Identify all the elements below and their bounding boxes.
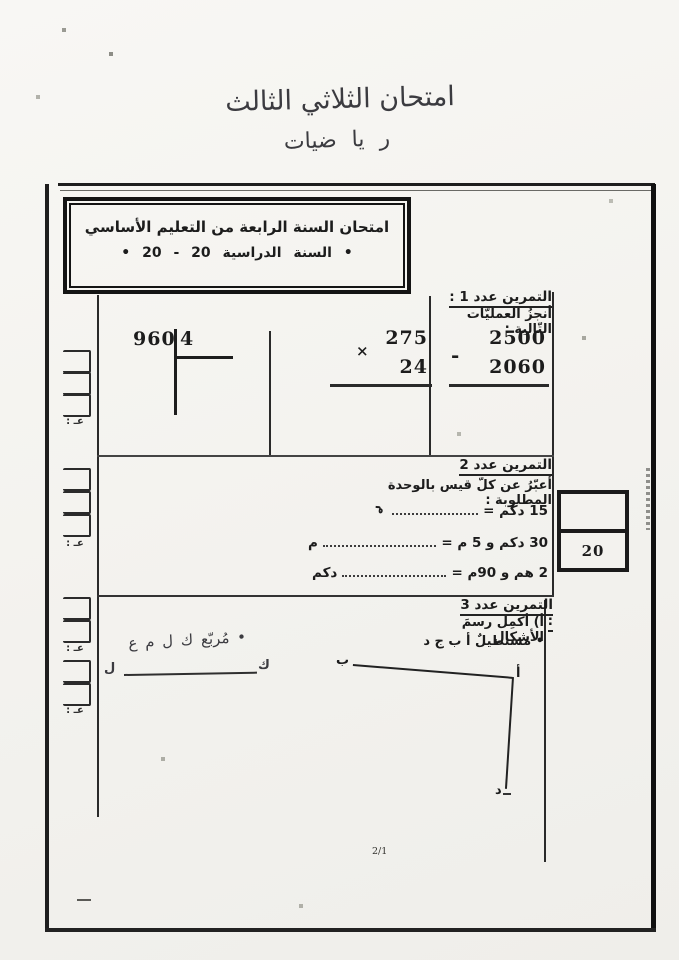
exercise1-title: التمرين عدد 1 : xyxy=(430,289,552,305)
subtraction-subtrahend: 2060 xyxy=(445,356,550,378)
conversion-label: 30 دكم و 5 م = xyxy=(441,535,548,551)
conversion-unit: م xyxy=(375,505,390,515)
dotted-answer-line xyxy=(323,544,436,547)
margin-score-label: عـ : xyxy=(58,416,92,427)
scanned-exam-page: امتحان الثلاثي الثالث ر يا ضيات امتحان ا… xyxy=(0,0,679,960)
point-d-tick xyxy=(503,793,511,795)
margin-score-box xyxy=(63,350,91,373)
margin-score-label: عـ : xyxy=(58,643,92,654)
minus-operator: - xyxy=(451,343,460,367)
conversion-item-1: 15 دكم = م xyxy=(378,503,548,519)
ex1-left-divider-line xyxy=(269,331,271,456)
header-box: امتحان السنة الرابعة من التعليم الأساسي … xyxy=(63,197,411,294)
margin-score-box xyxy=(63,660,91,683)
rectangle-top-side xyxy=(353,664,513,679)
rectangle-right-side xyxy=(505,677,514,789)
margin-smudge xyxy=(646,468,650,530)
division-bar-vertical xyxy=(174,329,177,415)
frame-line-top-inner xyxy=(60,190,655,191)
margin-score-box xyxy=(63,514,91,537)
handwritten-subject: ر يا ضيات xyxy=(262,125,413,155)
score-box-empty xyxy=(557,490,629,533)
dotted-answer-line xyxy=(392,512,478,515)
point-label-b: ب xyxy=(336,653,349,668)
conversion-item-2: 30 دكم و 5 م = م xyxy=(308,535,548,551)
multiplication-multiplier: 24 xyxy=(328,356,432,378)
margin-score-label: عـ : xyxy=(58,538,92,549)
square-shape-label: • مُربّع ك ل م ع xyxy=(128,628,247,652)
exercise2-title: التمرين عدد 2 xyxy=(452,457,552,473)
division-dividend: 960 xyxy=(133,328,176,350)
margin-score-box xyxy=(63,620,91,643)
rectangle-shape-label: • مستطيلٌ أ ب ج د xyxy=(386,634,544,649)
point-label-a: أ xyxy=(516,666,520,681)
margin-score-box xyxy=(63,597,91,620)
division-bar-horizontal xyxy=(176,356,233,359)
segment-kl-line xyxy=(124,672,257,676)
margin-score-box xyxy=(63,394,91,417)
subtraction-operation: 2500 - 2060 xyxy=(445,327,550,378)
ex3-right-column-line xyxy=(544,600,546,862)
scan-speckles xyxy=(0,0,2,2)
frame-line-right xyxy=(651,184,656,932)
margin-score-box xyxy=(63,683,91,706)
division-divisor: 4 xyxy=(180,328,194,350)
score-box-total: 20 xyxy=(557,529,629,572)
multiplication-operation: 275 × 24 xyxy=(328,327,432,378)
point-label-k: ك xyxy=(258,658,270,673)
margin-score-label: عـ : xyxy=(58,705,92,716)
handwritten-exam-title: امتحان الثلاثي الثالث xyxy=(190,80,491,119)
stray-dash-mark xyxy=(77,899,91,901)
score-value: 20 xyxy=(582,542,605,560)
subtraction-result-line xyxy=(449,384,549,387)
margin-score-box xyxy=(63,468,91,491)
header-school-year: • السنة الدراسية 20 - 20 • xyxy=(71,245,403,261)
margin-divider-line xyxy=(97,295,99,817)
subtraction-minuend: 2500 xyxy=(445,327,550,349)
header-title: امتحان السنة الرابعة من التعليم الأساسي xyxy=(71,218,403,236)
margin-score-box xyxy=(63,491,91,514)
point-label-d: د xyxy=(495,783,502,798)
ex1-right-column-line xyxy=(552,292,554,597)
conversion-item-3: 2 هم و 90م = دكم xyxy=(312,565,548,581)
multiplication-result-line xyxy=(330,384,432,387)
times-operator: × xyxy=(356,342,370,360)
frame-line-top xyxy=(58,183,655,186)
conversion-unit: دكم xyxy=(312,565,337,581)
margin-score-box xyxy=(63,372,91,395)
conversion-label: 15 دكم = xyxy=(483,503,548,519)
frame-line-bottom xyxy=(45,928,656,932)
conversion-label: 2 هم و 90م = xyxy=(451,565,548,581)
dotted-answer-line xyxy=(342,574,446,577)
conversion-unit: م xyxy=(308,535,318,551)
division-operation: 960 4 xyxy=(133,328,243,418)
multiplication-multiplicand: 275 xyxy=(328,327,432,349)
page-number: 2/1 xyxy=(372,846,387,857)
frame-line-left xyxy=(45,184,49,932)
point-label-l: ل xyxy=(104,661,115,676)
